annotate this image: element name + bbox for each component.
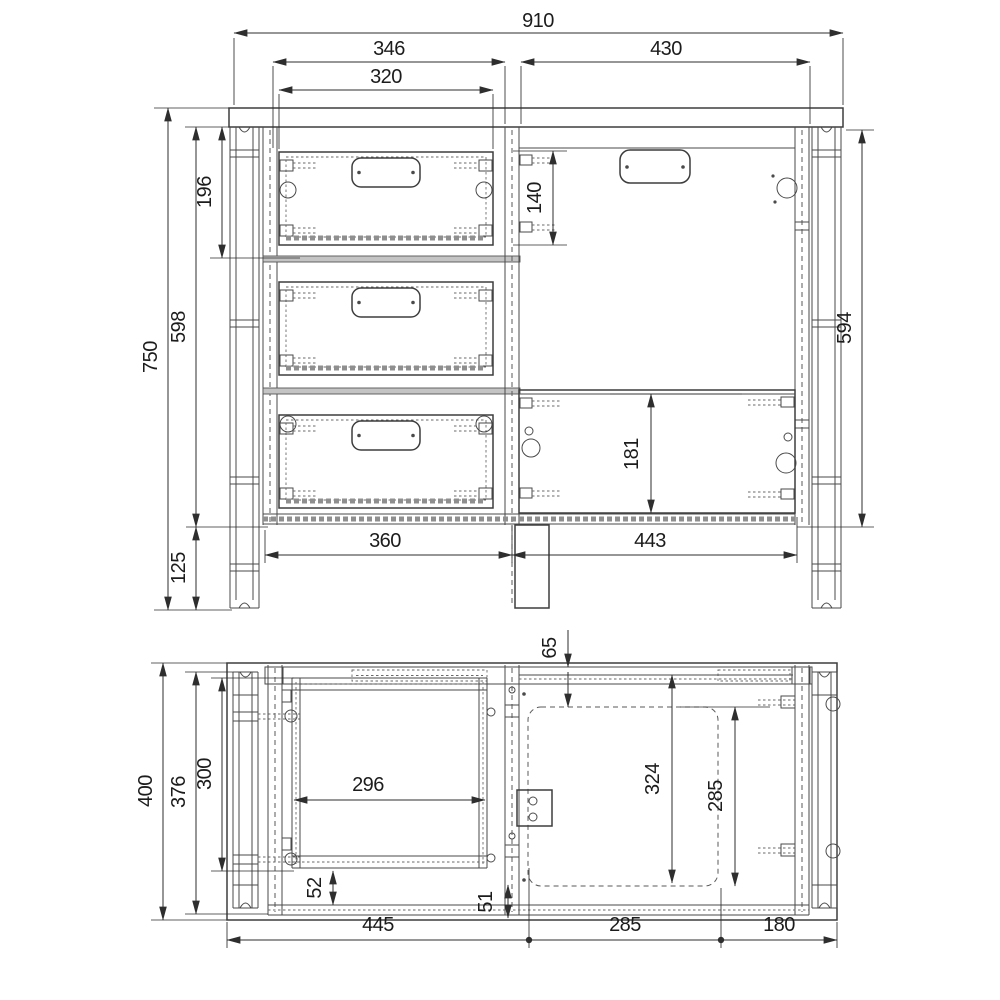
cam-lock-right-bottom <box>776 453 796 473</box>
dim-bottom-left-width: 445 <box>362 914 394 936</box>
dim-foot-height: 125 <box>168 552 190 584</box>
plan-view: 400 376 300 296 65 324 285 <box>135 630 840 948</box>
under-desk-module <box>528 707 718 886</box>
dim-left-back-gap: 52 <box>304 877 326 899</box>
drawer-box-plan <box>292 678 495 868</box>
dim-overall-width: 910 <box>522 10 554 32</box>
left-foot-notch <box>239 603 250 608</box>
shelf-divider-2 <box>263 388 520 394</box>
dim-bottom-right-width: 180 <box>763 914 795 936</box>
drawer-1-right-cam <box>476 182 492 198</box>
dim-knee-space-width: 430 <box>650 38 682 60</box>
modesty-panel <box>519 390 796 513</box>
right-foot-notch <box>821 603 832 608</box>
drawer-3 <box>279 415 493 508</box>
cable-cutout <box>620 150 690 183</box>
drawer-1 <box>279 152 493 245</box>
dim-overall-height: 750 <box>140 341 162 373</box>
right-side-plan <box>795 665 837 915</box>
left-side-panel <box>263 127 277 525</box>
dim-center-back-gap: 51 <box>475 891 497 913</box>
dim-top-drawer-height: 196 <box>194 176 216 208</box>
drawer-3-left-cam <box>280 416 296 432</box>
dim-overall-depth: 400 <box>135 775 157 807</box>
dim-drawer-front-width: 320 <box>370 66 402 88</box>
cam-lock-right-top <box>777 178 797 198</box>
left-leg <box>230 127 259 608</box>
shelf-divider-1 <box>263 256 520 262</box>
dim-bottom-middle-width: 285 <box>609 914 641 936</box>
dim-modesty-panel-height: 181 <box>621 438 643 470</box>
knee-space <box>519 127 809 525</box>
drawer-stack <box>263 152 520 508</box>
drawer-1-left-cam <box>280 182 296 198</box>
dim-drawer-box-depth: 300 <box>194 758 216 790</box>
left-leg-plan <box>233 672 300 908</box>
right-leg <box>812 127 841 608</box>
drawer-2 <box>279 282 493 375</box>
dim-cutout-drop: 140 <box>524 182 546 214</box>
dim-under-panel-depth: 285 <box>705 780 727 812</box>
desktop-panel <box>229 108 843 127</box>
dim-right-bottom-width: 443 <box>634 530 666 552</box>
dim-left-bottom-width: 360 <box>369 530 401 552</box>
dim-drawer-opening-width: 346 <box>373 38 405 60</box>
technical-drawing-canvas: 910 346 430 320 196 598 <box>0 0 1000 1000</box>
cam-lock-center <box>522 439 540 457</box>
back-rail-plan <box>268 905 809 915</box>
knee-section-plan <box>517 675 840 886</box>
dim-side-panel-height: 598 <box>168 311 190 343</box>
dim-right-inner-height: 594 <box>834 312 856 344</box>
bottom-rail <box>263 514 795 524</box>
dim-carcass-depth: 376 <box>168 776 190 808</box>
center-leg <box>515 525 549 608</box>
dim-drawer-inner-width: 296 <box>352 774 384 796</box>
dim-front-offset: 65 <box>539 637 561 659</box>
left-side-wall-plan <box>268 665 291 915</box>
drawing-page: 910 346 430 320 196 598 <box>0 0 1000 1000</box>
dim-knee-depth: 324 <box>642 763 664 795</box>
drawer-3-right-cam <box>476 416 492 432</box>
front-elevation-view: 910 346 430 320 196 598 <box>140 10 874 610</box>
